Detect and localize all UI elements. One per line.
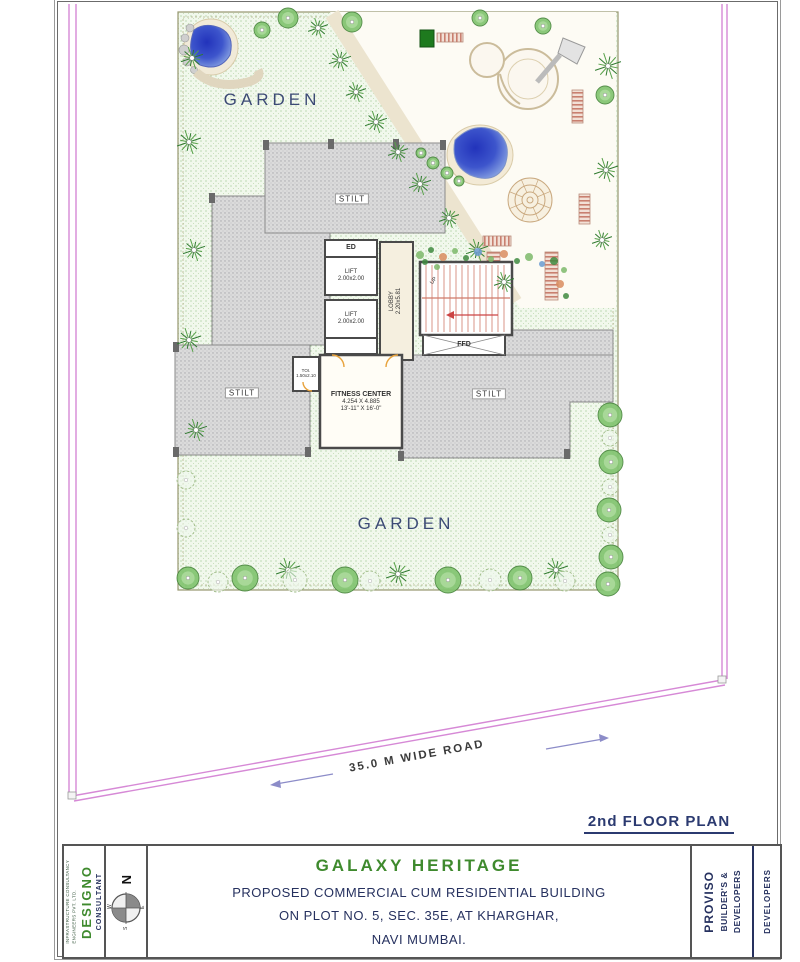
consultant-panel: INFRASTRUCTURE CONSULTANCY ENGINEERS PVT… bbox=[64, 846, 106, 957]
north-s-label: S bbox=[123, 926, 129, 930]
lift-2-dim: 2.00x2.00 bbox=[338, 319, 364, 326]
fitness-dim-m: 4.254 X 4.885 bbox=[331, 399, 391, 406]
lift-2-name: LIFT bbox=[338, 312, 364, 319]
developers-heading-panel: DEVELOPERS bbox=[752, 846, 780, 957]
lift-2-label: LIFT 2.00x2.00 bbox=[338, 312, 364, 326]
drawing-sheet: GARDEN GARDEN STILT STILT STILT ED LIFT … bbox=[0, 0, 800, 962]
stilt-label-left: STILT bbox=[225, 387, 259, 398]
developer-name3: DEVELOPERS bbox=[732, 870, 742, 933]
toilet-dim: 1.50x2.10 bbox=[296, 373, 316, 378]
curved-path bbox=[498, 49, 558, 109]
north-compass-panel: N W E S bbox=[106, 846, 148, 957]
boundary-corner-mark bbox=[718, 676, 726, 683]
pond-top-left bbox=[191, 25, 232, 67]
floor-plan-canvas bbox=[0, 0, 800, 812]
project-line4: NAVI MUMBAI. bbox=[372, 932, 467, 947]
garden-label-bottom: GARDEN bbox=[358, 514, 455, 534]
project-name: GALAXY HERITAGE bbox=[316, 856, 523, 876]
toilet-label: TOI. 1.50x2.10 bbox=[296, 368, 316, 378]
north-e-label: E bbox=[140, 905, 145, 909]
mandala bbox=[508, 178, 552, 222]
stilt-label-right: STILT bbox=[472, 388, 506, 399]
north-w-label: W bbox=[107, 904, 113, 909]
title-block: INFRASTRUCTURE CONSULTANCY ENGINEERS PVT… bbox=[62, 844, 782, 959]
lift-1-name: LIFT bbox=[338, 269, 364, 276]
project-line2: PROPOSED COMMERCIAL CUM RESIDENTIAL BUIL… bbox=[232, 885, 606, 900]
lobby-label: LOBBY 2.20x5.81 bbox=[389, 288, 403, 314]
boundary-corner-mark bbox=[68, 792, 76, 799]
road-arrows bbox=[270, 734, 609, 788]
ffd-label: FFD bbox=[457, 341, 471, 349]
project-line3: ON PLOT NO. 5, SEC. 35E, AT KHARGHAR, bbox=[279, 908, 559, 923]
project-title-panel: GALAXY HERITAGE PROPOSED COMMERCIAL CUM … bbox=[148, 846, 690, 957]
consultant-heading: CONSULTANT bbox=[96, 873, 103, 930]
consultant-sub1: INFRASTRUCTURE CONSULTANCY bbox=[65, 860, 71, 944]
developer-panel: PROVISO BUILDER'S & DEVELOPERS bbox=[690, 846, 752, 957]
lift-1-dim: 2.00x2.00 bbox=[338, 276, 364, 283]
garden-label-top: GARDEN bbox=[224, 90, 321, 110]
fitness-dim-ft: 13'-11" X 16'-0" bbox=[331, 406, 391, 413]
fitness-name: FITNESS CENTER bbox=[331, 391, 391, 399]
lift-1-label: LIFT 2.00x2.00 bbox=[338, 269, 364, 283]
developer-name1: PROVISO bbox=[702, 871, 716, 933]
stilt-label-top: STILT bbox=[335, 193, 369, 204]
green-structure bbox=[420, 30, 434, 47]
developers-heading: DEVELOPERS bbox=[763, 869, 772, 934]
compass-icon: W E S bbox=[107, 886, 145, 932]
north-n-label: N bbox=[119, 875, 134, 884]
consultant-name: DESIGNO bbox=[79, 865, 94, 939]
developer-name2: BUILDER'S & bbox=[719, 872, 729, 931]
lobby-name: LOBBY bbox=[389, 288, 396, 314]
fitness-label: FITNESS CENTER 4.254 X 4.885 13'-11" X 1… bbox=[331, 391, 391, 413]
consultant-sub2: ENGINEERS PVT. LTD. bbox=[71, 860, 77, 944]
lobby-dim: 2.20x5.81 bbox=[396, 288, 403, 314]
drawing-title: 2nd FLOOR PLAN bbox=[584, 813, 734, 834]
consultant-firm-details: INFRASTRUCTURE CONSULTANCY ENGINEERS PVT… bbox=[65, 860, 78, 944]
ed-label: ED bbox=[346, 244, 356, 252]
